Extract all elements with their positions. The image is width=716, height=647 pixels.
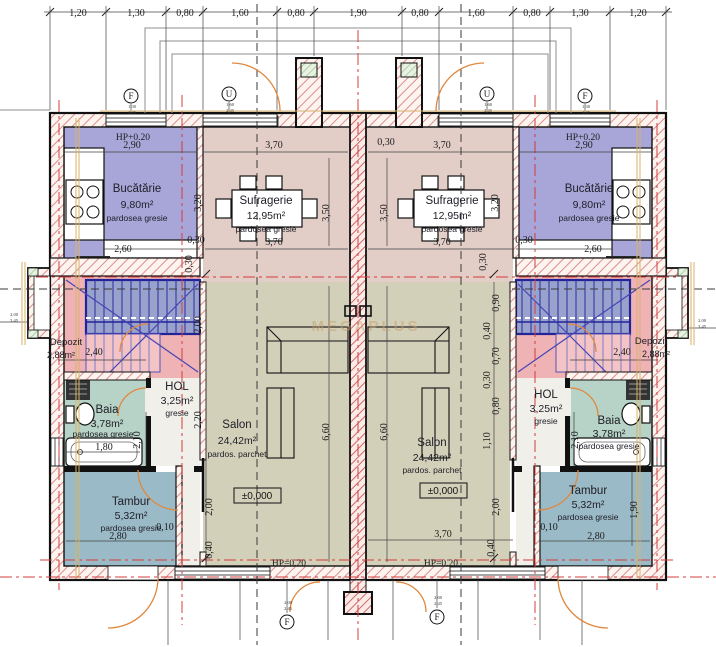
dimension-label: 0,40 <box>486 539 497 557</box>
dimension-label: 2,00 <box>491 498 502 516</box>
room-name: Depozit <box>50 337 83 348</box>
dimension-label: 1,90 <box>349 8 367 19</box>
dimension-label: 3,20 <box>193 194 204 212</box>
level-value: 2.45 <box>484 108 493 113</box>
dimension-label: 3,20 <box>490 194 501 212</box>
window-icon <box>51 438 63 466</box>
dimension-label: 0,40 <box>482 322 493 340</box>
marker-letter: F <box>434 612 439 622</box>
room-name: Baia <box>597 415 621 427</box>
dimension-label: 1,30 <box>127 8 145 19</box>
dimension-label: 2,20 <box>193 411 204 429</box>
level-value: 1.60 <box>484 102 493 107</box>
dimension-label: 0,80 <box>287 8 305 19</box>
level-value: 2.45 <box>226 108 235 113</box>
room-name: Sufragerie <box>239 195 292 207</box>
dimension-label: 0,70 <box>491 347 502 365</box>
dimension-label: 3,70 <box>433 140 451 151</box>
window-icon <box>203 114 277 126</box>
dimension-label: 0,90 <box>491 294 502 312</box>
dimension-label: 0,80 <box>411 8 429 19</box>
window-icon <box>653 438 665 466</box>
marker-letter: F <box>128 91 133 101</box>
level-value: 1.30 <box>582 104 591 109</box>
dimension-label: 2,60 <box>114 244 132 255</box>
dimension-label: 0,30 <box>184 255 195 273</box>
dimension-label: 0,30 <box>482 371 493 389</box>
watermark: MEGAPLUS <box>311 318 420 335</box>
room-area: 24,42m² <box>218 435 257 447</box>
room-floor: gresie <box>534 416 557 426</box>
room-floor: pardosea gresie <box>73 429 134 439</box>
dimension-label: 3,50 <box>379 204 390 222</box>
dimension-label: 0,30 <box>187 235 205 246</box>
floor-plan-page: 1,201,300,801,600,801,900,801,600,801,30… <box>0 0 716 647</box>
room-name: Salon <box>417 437 446 449</box>
room-name: Depozit <box>635 336 668 347</box>
dimension-label: 1,60 <box>231 8 249 19</box>
dimension-label: 3,50 <box>321 204 332 222</box>
room-area: 9,80m² <box>121 199 154 211</box>
dimension-label: 3,70 <box>265 237 283 248</box>
dimension-label: 2,40 <box>85 347 103 358</box>
dimension-label: 0,80 <box>176 8 194 19</box>
dimension-label: 2,00 <box>193 316 204 334</box>
level-value: 2.00 <box>434 595 443 600</box>
toilet-icon <box>66 406 74 423</box>
door-opening <box>558 566 608 580</box>
washer-icon <box>626 380 650 400</box>
level-value: 2.00 <box>698 318 707 323</box>
room-floor: pardosea gresie <box>559 213 620 223</box>
dimension-label: 1,20 <box>69 8 87 19</box>
dimension-label: 2,10 <box>132 431 143 449</box>
hp-level-label: HP=0.20 <box>272 559 306 569</box>
room-name: Bucătărie <box>113 183 162 195</box>
dimension-label: 1,30 <box>571 8 589 19</box>
room-floor: pardosea gresie <box>422 224 483 234</box>
marker-letter: F <box>284 617 289 627</box>
washer-icon <box>66 380 90 400</box>
room-floor: pardos. parchet <box>207 449 267 459</box>
room-area: 12,95m² <box>433 210 472 222</box>
dimension-label: 0,30 <box>515 235 533 246</box>
level-value: 2.45 <box>284 606 293 611</box>
dimension-label: 0,30 <box>478 253 489 271</box>
dimension-label: 0,10 <box>540 522 558 533</box>
room-area: 5,32m² <box>572 499 605 511</box>
dimension-label: 1,10 <box>482 432 493 450</box>
toilet-icon <box>642 406 650 423</box>
window-icon <box>106 114 166 126</box>
level-value: ±0,000 <box>428 486 459 497</box>
dimension-label: 1,20 <box>629 8 647 19</box>
room-name: Baia <box>95 404 119 416</box>
dimension-label: 0,80 <box>491 397 502 415</box>
level-value: 2.45 <box>434 601 443 606</box>
door-opening <box>108 566 158 580</box>
dimension-label: 0,30 <box>377 137 395 148</box>
dimension-label: 1,60 <box>467 8 485 19</box>
hp-level-label: HP+0.20 <box>116 133 150 143</box>
room-name: Sufragerie <box>425 195 478 207</box>
room-name: Tambur <box>112 496 151 508</box>
level-value: 2.00 <box>10 312 19 317</box>
level-value: 3.45 <box>10 318 19 323</box>
room-floor: pardos. parchet <box>402 465 462 475</box>
room-area: 2,88m² <box>47 350 75 360</box>
hp-level-label: HP+0.20 <box>566 133 600 143</box>
window-icon <box>439 114 513 126</box>
stove-icon <box>66 180 103 224</box>
room-area: 9,80m² <box>573 199 606 211</box>
room-area: 3,25m² <box>161 395 194 407</box>
level-value: 2.00 <box>284 600 293 605</box>
room-name: HOL <box>165 381 189 393</box>
dimension-label: 2,40 <box>613 347 631 358</box>
level-value: 1.30 <box>128 104 137 109</box>
dimension-label: 3,70 <box>433 237 451 248</box>
dimension-label: 6,60 <box>321 423 332 441</box>
marker-letter: U <box>484 89 491 99</box>
dimension-label: 6,60 <box>379 423 390 441</box>
dimension-label: 1,80 <box>95 442 113 453</box>
dimension-label: 0,40 <box>204 541 215 559</box>
room-name: HOL <box>534 389 558 401</box>
room-name: Tambur <box>569 485 608 497</box>
room-floor: pardosea gresie <box>236 224 297 234</box>
level-value: ±0,000 <box>242 491 273 502</box>
room-area: 24,42m² <box>413 452 452 464</box>
dimension-label: 1,90 <box>629 501 640 519</box>
dimension-label: 3,70 <box>265 140 283 151</box>
room-area: 5,32m² <box>115 510 148 522</box>
room-area: 2,88m² <box>642 349 670 359</box>
room-area: 12,95m² <box>247 210 286 222</box>
marker-letter: F <box>582 91 587 101</box>
room-floor: pardosea gresie <box>558 512 619 522</box>
room-area: 3,25m² <box>530 403 563 415</box>
dimension-label: 2,60 <box>584 244 602 255</box>
room-floor: pardosea gresie <box>579 441 640 451</box>
dimension-label: 3,70 <box>434 529 452 540</box>
room-name: Bucătărie <box>565 183 614 195</box>
dimension-label: 0,80 <box>523 8 541 19</box>
window-icon <box>550 114 610 126</box>
dimension-label: 2,00 <box>204 498 215 516</box>
level-value: 2.45 <box>582 110 591 115</box>
room-floor: pardosea gresie <box>107 213 168 223</box>
level-value: 2.45 <box>128 110 137 115</box>
room-name: Salon <box>222 419 251 431</box>
dimension-label: 2,80 <box>587 531 605 542</box>
room-area: 3,78m² <box>593 428 626 440</box>
marker-letter: U <box>226 89 233 99</box>
room-floor: pardosea gresie <box>101 523 162 533</box>
hp-level-label: HP=0.20 <box>424 559 458 569</box>
level-value: 1.60 <box>226 102 235 107</box>
level-value: 3.45 <box>698 324 707 329</box>
room-floor: gresie <box>165 408 188 418</box>
floor-plan-drawing: 1,201,300,801,600,801,900,801,600,801,30… <box>0 0 716 647</box>
